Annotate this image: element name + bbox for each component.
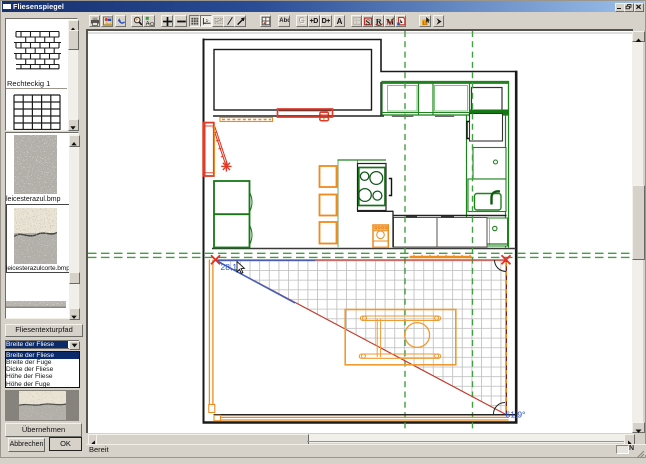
svg-text:61,9°: 61,9° — [506, 410, 526, 420]
svg-text:28,1: 28,1 — [221, 262, 238, 272]
